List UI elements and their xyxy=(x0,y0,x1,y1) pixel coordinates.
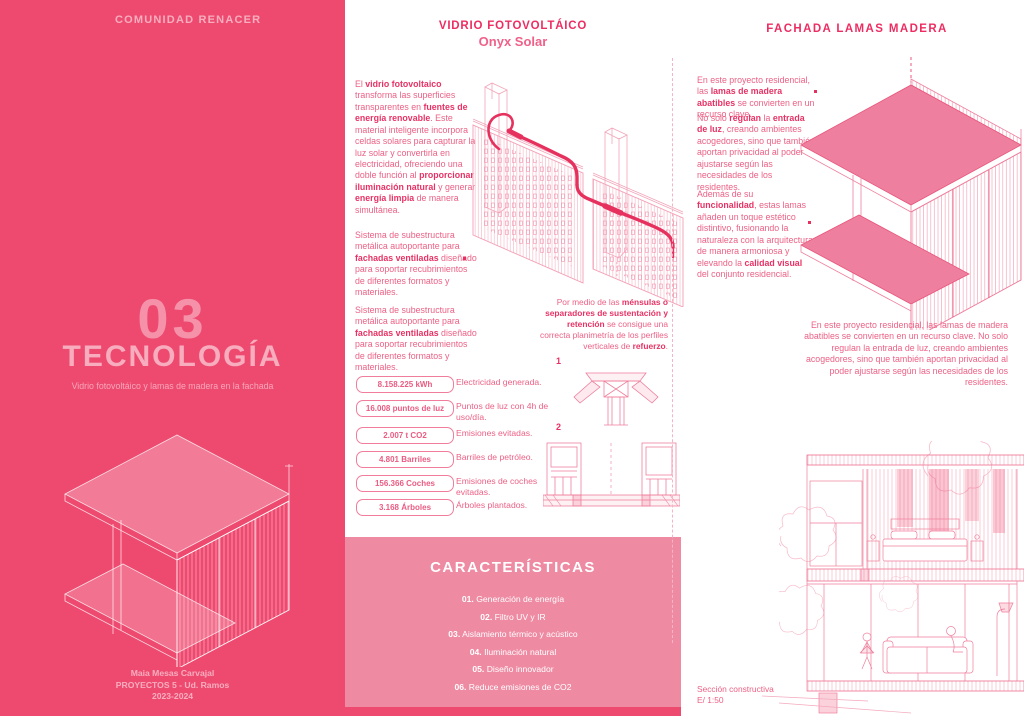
bottom-accent-strip xyxy=(345,707,681,716)
feature-item: 05. Diseño innovador xyxy=(345,664,681,674)
feature-item: 04. Iluminación natural xyxy=(345,647,681,657)
stat-value-badge: 8.158.225 kWh xyxy=(356,376,454,393)
left-pink-panel: COMUNIDAD RENACER 03 TECNOLOGÍA Vidrio f… xyxy=(0,0,345,716)
stat-row: 4.801 Barriles Barriles de petróleo. xyxy=(356,451,656,473)
stat-description: Puntos de luz con 4h de uso/día. xyxy=(456,401,568,422)
feature-item: 01. Generación de energía xyxy=(345,594,681,604)
substructure-paragraph-2: Sistema de subestructura metálica autopo… xyxy=(355,305,478,374)
stat-value-badge: 3.168 Árboles xyxy=(356,499,454,516)
stat-row: 3.168 Árboles Árboles plantados. xyxy=(356,499,656,521)
feature-item: 03. Aislamiento térmico y acústico xyxy=(345,629,681,639)
stat-row: 8.158.225 kWh Electricidad generada. xyxy=(356,376,656,398)
stat-description: Árboles plantados. xyxy=(456,500,568,511)
stat-value-badge: 2.007 t CO2 xyxy=(356,427,454,444)
features-title: CARACTERÍSTICAS xyxy=(345,559,681,576)
middle-section-subtitle: Onyx Solar xyxy=(345,34,681,49)
stat-description: Emisiones de coches evitadas. xyxy=(456,476,568,497)
left-building-axon-drawing xyxy=(55,402,335,667)
feature-item: 06. Reduce emisiones de CO2 xyxy=(345,682,681,692)
middle-section-title: VIDRIO FOTOVOLTÁICO xyxy=(345,20,681,32)
bracket-caption: Por medio de las ménsulas o separadores … xyxy=(540,297,668,352)
feature-item: 02. Filtro UV y IR xyxy=(345,612,681,622)
stat-row: 156.366 Coches Emisiones de coches evita… xyxy=(356,475,656,497)
right-building-axon-drawing xyxy=(793,55,1023,330)
right-section-title: FACHADA LAMAS MADERA xyxy=(690,23,1024,35)
detail-1-label: 1 xyxy=(556,356,561,366)
credit-course: PROYECTOS 5 - Ud. Ramos xyxy=(0,680,345,692)
chapter-title: TECNOLOGÍA xyxy=(0,340,345,374)
stat-value-badge: 4.801 Barriles xyxy=(356,451,454,468)
stat-value-badge: 156.366 Coches xyxy=(356,475,454,492)
project-name: COMUNIDAD RENACER xyxy=(115,14,261,26)
credit-author: Maia Mesas Carvajal xyxy=(0,668,345,680)
stat-value-badge: 16.008 puntos de luz xyxy=(356,400,454,417)
stat-description: Barriles de petróleo. xyxy=(456,452,568,463)
credit-year: 2023-2024 xyxy=(0,691,345,703)
chapter-subtitle: Vidrio fotovoltáico y lamas de madera en… xyxy=(0,381,345,391)
credits: Maia Mesas Carvajal PROYECTOS 5 - Ud. Ra… xyxy=(0,668,345,703)
lamas-summary: En este proyecto residencial, las lamas … xyxy=(793,320,1008,389)
pv-glass-axon-drawing xyxy=(455,57,690,307)
stat-row: 16.008 puntos de luz Puntos de luz con 4… xyxy=(356,400,656,422)
pointer-dot xyxy=(463,257,466,260)
construction-section-drawing xyxy=(779,441,1024,716)
stat-description: Emisiones evitadas. xyxy=(456,428,568,439)
features-box: CARACTERÍSTICAS 01. Generación de energí… xyxy=(345,537,681,707)
section-divider-dashed xyxy=(672,58,673,643)
poster-board: COMUNIDAD RENACER 03 TECNOLOGÍA Vidrio f… xyxy=(0,0,1024,716)
stat-row: 2.007 t CO2 Emisiones evitadas. xyxy=(356,427,656,449)
caption-leader-line xyxy=(760,690,870,704)
stat-description: Electricidad generada. xyxy=(456,377,568,388)
